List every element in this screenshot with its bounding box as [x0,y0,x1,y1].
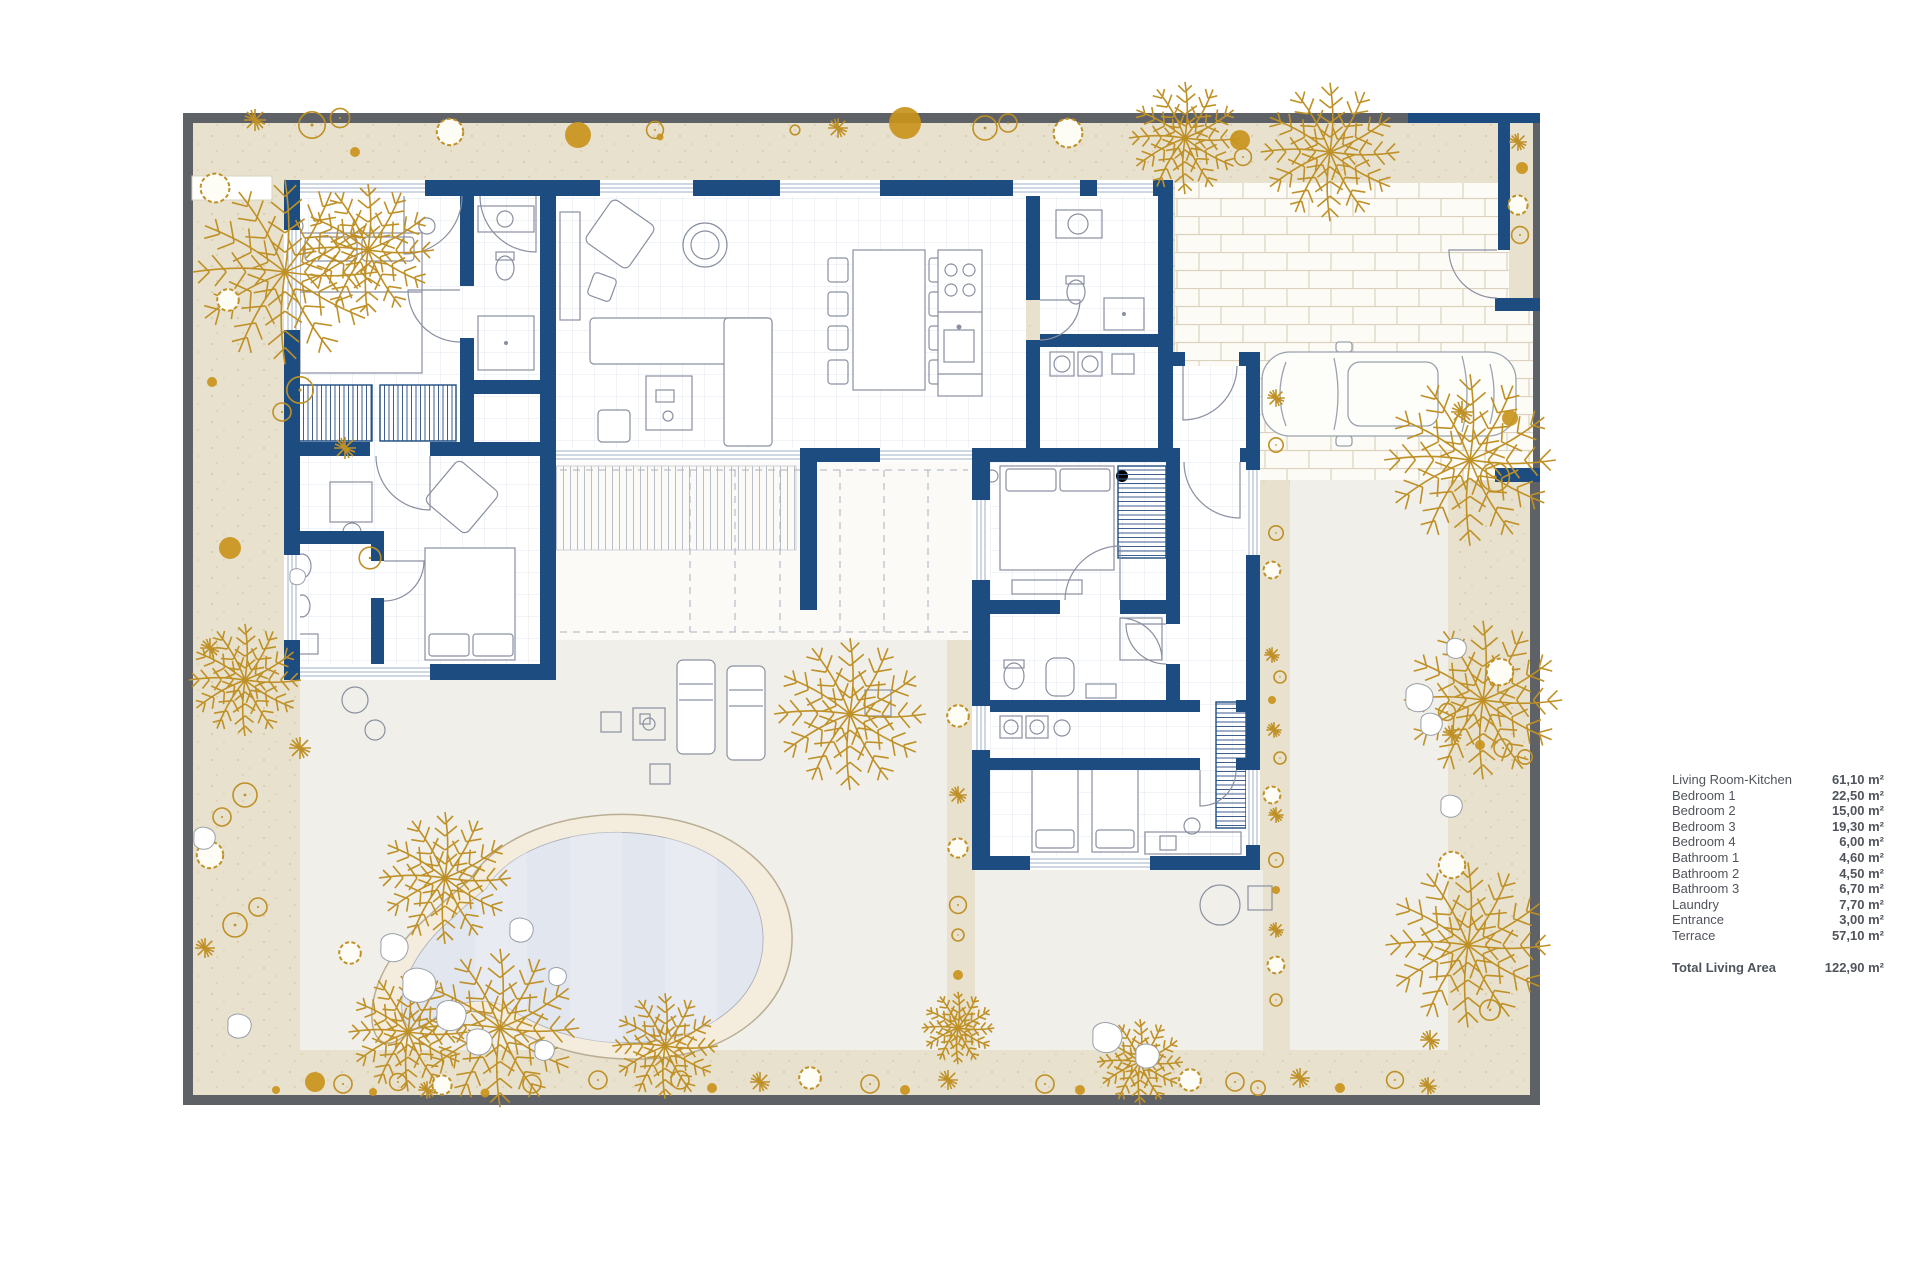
legend-row-value: 6,00 m² [1839,834,1884,850]
floor-plan-drawing [0,0,1920,1280]
star-plant-icon [828,118,848,138]
rock-icon [535,1040,555,1060]
bush-icon [948,838,967,857]
car-icon [1262,342,1516,446]
deck-steps [556,466,796,550]
star-plant-icon [200,638,220,658]
wardrobe [380,385,456,441]
star-plant-icon [938,1070,958,1090]
legend-row: Bathroom 3 6,70 m² [1672,881,1884,897]
dining-table [853,250,925,390]
legend-row: Living Room-Kitchen 61,10 m² [1672,772,1884,788]
star-plant-icon [1420,1030,1440,1050]
bush-icon [1268,957,1285,974]
star-plant-icon [1267,389,1285,407]
legend-total-value: 122,90 m² [1825,960,1884,976]
sun-lounger [727,666,765,760]
bush-icon [432,1075,451,1094]
legend-row: Bedroom 1 22,50 m² [1672,788,1884,804]
rock-icon [1441,795,1462,817]
legend-row: Laundry 7,70 m² [1672,897,1884,913]
legend-row-value: 19,30 m² [1832,819,1884,835]
bush-icon [799,1067,821,1089]
rock-icon [467,1029,492,1055]
legend-row-label: Bathroom 2 [1672,866,1739,882]
rock-icon [1421,713,1442,735]
legend-row-label: Bedroom 2 [1672,803,1736,819]
legend-row-value: 22,50 m² [1832,788,1884,804]
star-plant-icon [244,109,266,131]
area-legend: Living Room-Kitchen 61,10 m² Bedroom 1 2… [1672,772,1884,975]
bush-icon [1508,195,1527,214]
legend-total-label: Total Living Area [1672,960,1776,976]
legend-total-row: Total Living Area 122,90 m² [1672,960,1884,976]
bush-icon [1487,659,1513,685]
legend-row-value: 3,00 m² [1839,912,1884,928]
bush-icon [217,289,239,311]
star-plant-icon [1268,922,1283,937]
star-plant-icon [334,437,356,459]
legend-row: Bedroom 3 19,30 m² [1672,819,1884,835]
rock-icon [549,968,567,986]
sun-lounger [677,660,715,754]
legend-row: Terrace 57,10 m² [1672,928,1884,944]
legend-row-label: Bedroom 3 [1672,819,1736,835]
legend-row-value: 4,60 m² [1839,850,1884,866]
bush-icon [201,174,230,203]
star-plant-icon [195,938,215,958]
rock-icon [228,1014,251,1038]
legend-row-value: 61,10 m² [1832,772,1884,788]
legend-row-label: Bathroom 1 [1672,850,1739,866]
rock-icon [1093,1023,1122,1053]
rock-icon [437,1001,466,1031]
star-plant-icon [418,1081,436,1099]
legend-row-value: 6,70 m² [1839,881,1884,897]
star-plant-icon [1290,1068,1310,1088]
bush-icon [339,942,361,964]
bush-icon [1439,852,1465,878]
rock-icon [510,918,533,942]
star-plant-icon [1442,725,1462,745]
legend-row: Bedroom 2 15,00 m² [1672,803,1884,819]
star-plant-icon [1268,807,1283,822]
rock-icon [1406,684,1433,712]
star-plant-icon [1509,133,1527,151]
legend-row-label: Bedroom 4 [1672,834,1736,850]
star-plant-icon [289,737,311,759]
star-plant-icon [1266,722,1281,737]
bush-icon [437,119,463,145]
star-plant-icon [1419,1077,1437,1095]
legend-row-label: Bathroom 3 [1672,881,1739,897]
legend-row-label: Terrace [1672,928,1715,944]
rock-icon [1447,638,1467,658]
rock-icon [403,968,436,1002]
legend-row-value: 15,00 m² [1832,803,1884,819]
legend-row-label: Laundry [1672,897,1719,913]
legend-row-label: Bedroom 1 [1672,788,1736,804]
rock-icon [194,827,215,849]
floor-plan-page: Living Room-Kitchen 61,10 m² Bedroom 1 2… [0,0,1920,1280]
star-plant-icon [949,786,967,804]
legend-row: Bathroom 2 4,50 m² [1672,866,1884,882]
rock-icon [381,934,408,962]
wardrobe [1118,466,1166,558]
legend-row-value: 4,50 m² [1839,866,1884,882]
bush-icon [1179,1069,1201,1091]
bush-icon [1054,119,1083,148]
sofa [724,318,772,446]
bush-icon [947,705,969,727]
bush-icon [1264,562,1281,579]
legend-row: Bedroom 4 6,00 m² [1672,834,1884,850]
legend-rows: Living Room-Kitchen 61,10 m² Bedroom 1 2… [1672,772,1884,944]
legend-row-label: Living Room-Kitchen [1672,772,1792,788]
rock-icon [1136,1044,1159,1068]
legend-row-value: 57,10 m² [1832,928,1884,944]
star-plant-icon [1264,647,1279,662]
legend-row-label: Entrance [1672,912,1724,928]
star-plant-icon [1451,401,1473,423]
legend-row: Entrance 3,00 m² [1672,912,1884,928]
star-plant-icon [750,1072,770,1092]
rock-icon [290,569,306,585]
legend-row: Bathroom 1 4,60 m² [1672,850,1884,866]
bush-icon [1264,787,1281,804]
legend-row-value: 7,70 m² [1839,897,1884,913]
wardrobe [296,385,372,441]
